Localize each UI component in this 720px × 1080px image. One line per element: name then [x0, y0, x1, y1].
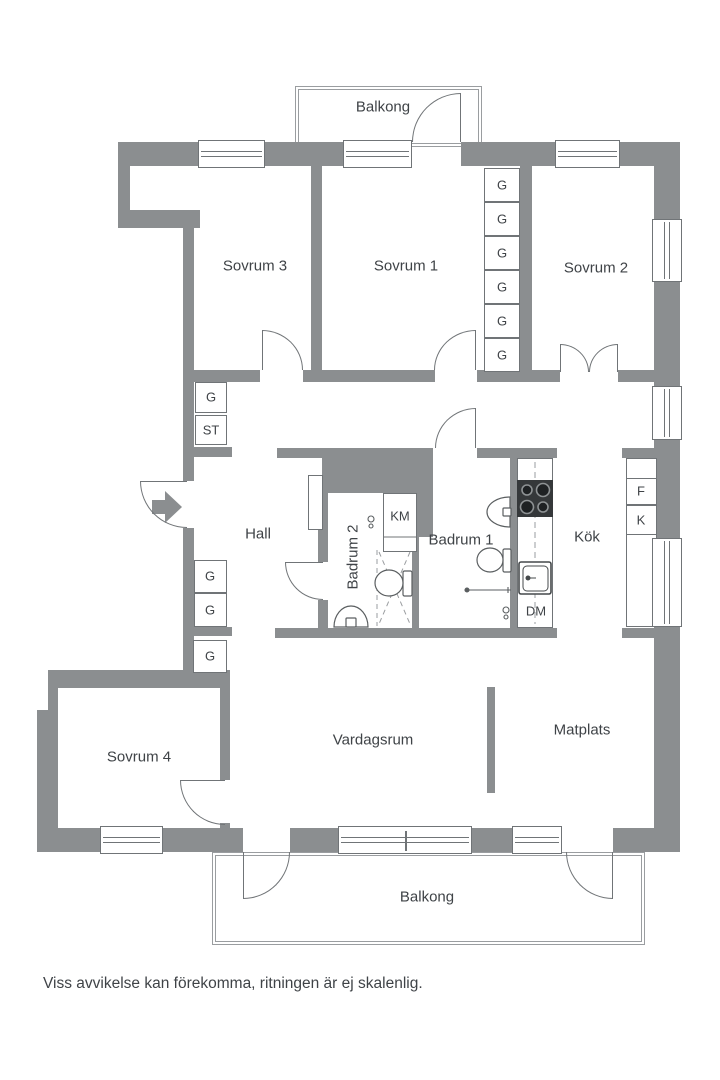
stove-icon — [517, 480, 553, 517]
door-leaf — [180, 780, 225, 781]
room-label-sovrum1: Sovrum 1 — [374, 258, 438, 275]
appliance-label-km: KM — [390, 509, 410, 524]
door-leaf — [243, 852, 244, 899]
disclaimer-text: Viss avvikelse kan förekomma, ritningen … — [43, 975, 423, 993]
door-leaf — [612, 852, 613, 899]
room-label-kok: Kök — [574, 529, 600, 546]
sink-icon — [334, 606, 368, 627]
room-label-sovrum4: Sovrum 4 — [107, 749, 171, 766]
floor-plan: Balkong Sovrum 3 Sovrum 1 Sovrum 2 Hall … — [0, 0, 720, 1080]
door-leaf — [560, 344, 561, 372]
door-leaf — [475, 330, 476, 370]
door-leaf — [460, 93, 461, 142]
appliance-label-f: F — [637, 484, 645, 499]
closet-label-st: ST — [203, 423, 220, 438]
toilet-icon — [375, 570, 412, 596]
closet-label-g: G — [205, 649, 215, 664]
door-leaf — [617, 344, 618, 372]
room-label-matplats: Matplats — [554, 722, 611, 739]
closet-label-g: G — [497, 178, 507, 193]
room-label-vardagsrum: Vardagsrum — [333, 732, 414, 749]
closet-label-g: G — [497, 280, 507, 295]
closet-label-g: G — [497, 212, 507, 227]
closet-label-g: G — [497, 314, 507, 329]
closet-label-g: G — [206, 390, 216, 405]
kitchen-sink-icon — [519, 562, 551, 594]
door-leaf — [475, 408, 476, 448]
room-label-balkong-top: Balkong — [356, 99, 410, 116]
closet-label-g: G — [497, 246, 507, 261]
room-label-badrum1: Badrum 1 — [428, 532, 493, 549]
closet-label-g: G — [205, 569, 215, 584]
room-label-sovrum3: Sovrum 3 — [223, 258, 287, 275]
grab-bar-icon — [465, 587, 511, 593]
door-leaf — [285, 562, 323, 563]
room-label-sovrum2: Sovrum 2 — [564, 260, 628, 277]
closet-label-g: G — [497, 348, 507, 363]
sink-icon — [487, 497, 511, 527]
tap-icon — [368, 516, 374, 528]
room-label-badrum2: Badrum 2 — [345, 524, 362, 589]
room-label-hall: Hall — [245, 526, 271, 543]
appliance-label-dm: DM — [526, 604, 546, 619]
closet-label-g: G — [205, 603, 215, 618]
door-leaf — [140, 481, 187, 482]
tap-icon — [503, 607, 509, 619]
room-label-balkong-bottom: Balkong — [400, 889, 454, 906]
appliance-label-k: K — [637, 513, 646, 528]
door-leaf — [262, 330, 263, 370]
toilet-icon — [477, 548, 511, 572]
